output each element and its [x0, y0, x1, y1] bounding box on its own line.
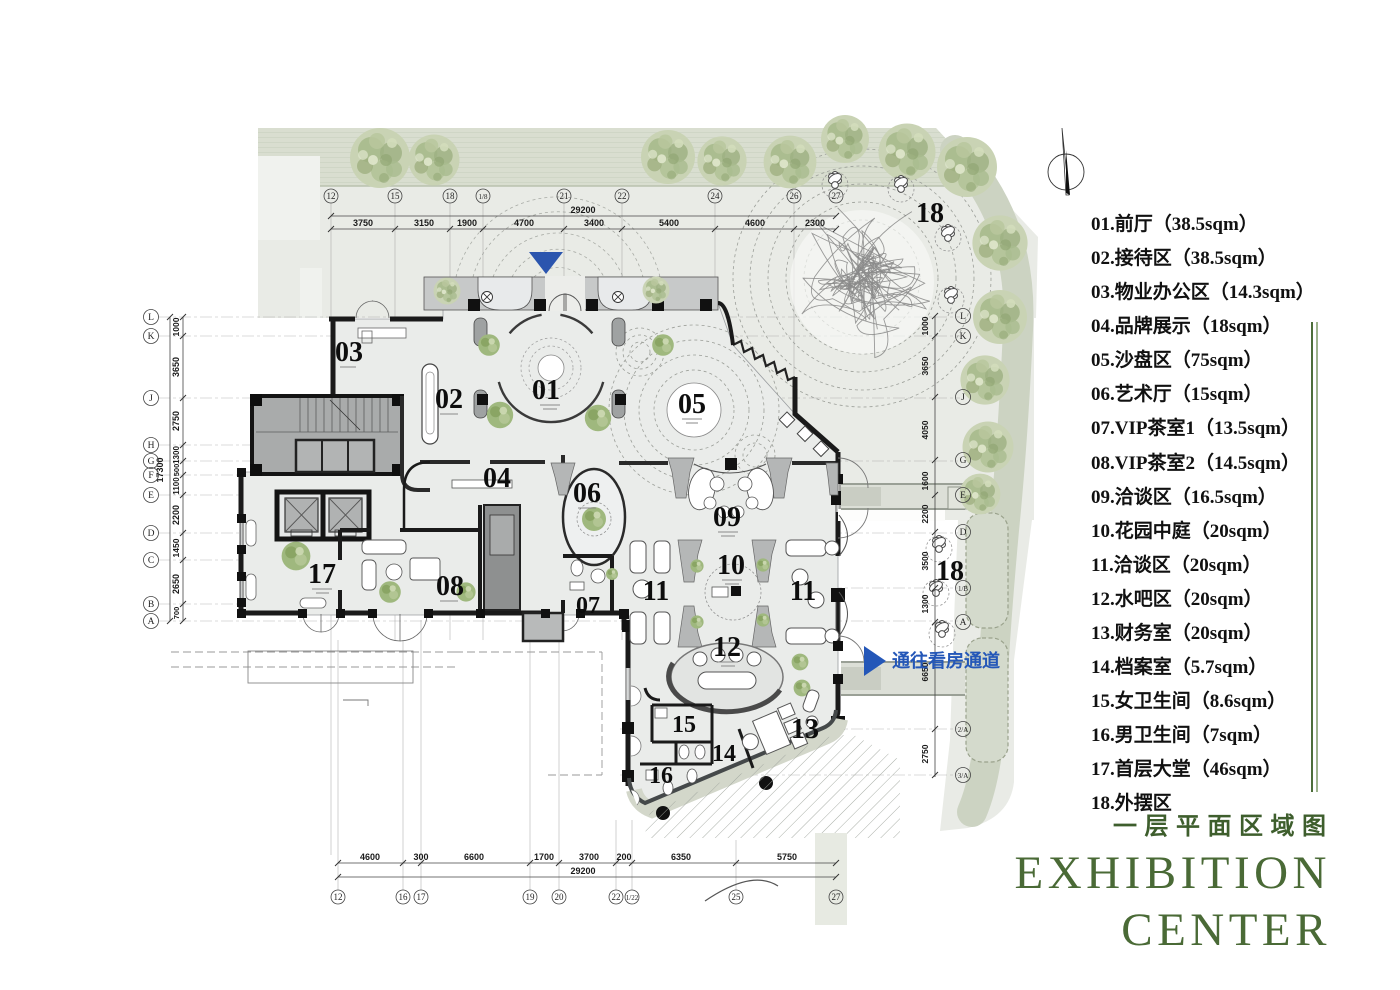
svg-text:C: C: [148, 556, 154, 566]
svg-text:18.外摆区: 18.外摆区: [1091, 791, 1172, 814]
svg-text:12: 12: [334, 892, 343, 902]
svg-text:19: 19: [526, 892, 536, 902]
svg-text:08.VIP茶室2（14.5sqm）: 08.VIP茶室2（14.5sqm）: [1091, 451, 1300, 474]
svg-text:通往看房通道: 通往看房通道: [892, 650, 1000, 671]
svg-text:EXHIBITION: EXHIBITION: [1015, 847, 1332, 899]
svg-text:3650: 3650: [171, 357, 181, 377]
svg-text:500: 500: [172, 464, 181, 477]
svg-text:02.接待区（38.5sqm）: 02.接待区（38.5sqm）: [1091, 246, 1277, 269]
svg-text:1900: 1900: [457, 218, 477, 228]
svg-text:700: 700: [172, 607, 181, 620]
svg-text:2/A: 2/A: [958, 726, 969, 734]
svg-text:04.品牌展示（18sqm）: 04.品牌展示（18sqm）: [1091, 314, 1282, 337]
svg-text:20: 20: [555, 892, 565, 902]
svg-text:29200: 29200: [570, 205, 595, 215]
svg-text:17: 17: [417, 892, 427, 902]
svg-text:27: 27: [832, 892, 842, 902]
svg-text:16.男卫生间（7sqm）: 16.男卫生间（7sqm）: [1091, 723, 1272, 746]
svg-text:2750: 2750: [920, 744, 930, 763]
svg-text:3400: 3400: [584, 218, 604, 228]
svg-text:D: D: [148, 529, 155, 539]
svg-text:L: L: [148, 313, 154, 323]
svg-text:1000: 1000: [920, 316, 930, 335]
svg-text:13.财务室（20sqm）: 13.财务室（20sqm）: [1091, 621, 1263, 644]
svg-text:17: 17: [308, 559, 336, 590]
svg-text:L: L: [960, 312, 966, 322]
svg-text:5750: 5750: [777, 852, 797, 862]
svg-text:06: 06: [573, 478, 601, 509]
svg-text:3650: 3650: [920, 356, 930, 375]
svg-text:15.女卫生间（8.6sqm）: 15.女卫生间（8.6sqm）: [1091, 689, 1286, 712]
svg-text:2750: 2750: [171, 411, 181, 431]
svg-text:21: 21: [560, 191, 569, 201]
svg-text:06.艺术厅（15sqm）: 06.艺术厅（15sqm）: [1091, 382, 1263, 405]
svg-text:1300: 1300: [172, 446, 181, 464]
svg-text:1/8: 1/8: [479, 193, 488, 201]
svg-text:22: 22: [618, 191, 627, 201]
svg-text:2650: 2650: [171, 574, 181, 594]
svg-text:15: 15: [672, 712, 696, 738]
svg-text:03: 03: [335, 337, 363, 368]
svg-text:11.洽谈区（20sqm）: 11.洽谈区（20sqm）: [1091, 553, 1262, 576]
svg-text:10.花园中庭（20sqm）: 10.花园中庭（20sqm）: [1091, 519, 1282, 542]
svg-text:2200: 2200: [920, 504, 930, 523]
svg-text:15: 15: [391, 191, 401, 201]
svg-text:J: J: [961, 393, 965, 403]
svg-text:12.水吧区（20sqm）: 12.水吧区（20sqm）: [1091, 587, 1263, 610]
svg-text:2300: 2300: [805, 218, 825, 228]
svg-text:200: 200: [616, 852, 631, 862]
svg-text:17.首层大堂（46sqm）: 17.首层大堂（46sqm）: [1091, 757, 1282, 780]
svg-text:12: 12: [327, 191, 336, 201]
svg-text:1450: 1450: [171, 538, 181, 557]
svg-text:4600: 4600: [360, 852, 380, 862]
svg-text:D: D: [960, 528, 967, 538]
svg-text:29200: 29200: [570, 866, 595, 876]
svg-text:1600: 1600: [920, 471, 930, 490]
svg-text:16: 16: [649, 763, 673, 789]
svg-text:3700: 3700: [579, 852, 599, 862]
svg-text:08: 08: [436, 571, 464, 602]
svg-text:1/22: 1/22: [626, 894, 639, 902]
svg-text:18: 18: [916, 198, 944, 229]
svg-text:05: 05: [678, 389, 706, 420]
svg-text:4600: 4600: [745, 218, 765, 228]
svg-text:F: F: [148, 471, 153, 481]
svg-text:04: 04: [483, 463, 511, 494]
svg-text:03.物业办公区（14.3sqm）: 03.物业办公区（14.3sqm）: [1091, 280, 1315, 303]
svg-text:G: G: [148, 457, 155, 467]
svg-text:07.VIP茶室1（13.5sqm）: 07.VIP茶室1（13.5sqm）: [1091, 416, 1300, 439]
svg-text:13: 13: [791, 714, 819, 745]
svg-text:09.洽谈区（16.5sqm）: 09.洽谈区（16.5sqm）: [1091, 485, 1277, 508]
svg-text:2200: 2200: [171, 505, 181, 525]
svg-text:14.档案室（5.7sqm）: 14.档案室（5.7sqm）: [1091, 655, 1267, 678]
svg-text:B: B: [148, 600, 154, 610]
svg-text:4050: 4050: [920, 420, 930, 439]
svg-text:K: K: [960, 332, 967, 342]
svg-text:18: 18: [446, 191, 456, 201]
svg-text:14: 14: [712, 741, 736, 767]
svg-text:300: 300: [413, 852, 428, 862]
svg-text:H: H: [148, 441, 155, 451]
svg-text:10: 10: [717, 550, 745, 581]
svg-text:26: 26: [790, 191, 800, 201]
svg-text:27: 27: [832, 191, 842, 201]
svg-text:1000: 1000: [171, 317, 181, 336]
svg-text:6350: 6350: [671, 852, 691, 862]
svg-text:01: 01: [532, 375, 560, 406]
svg-text:09: 09: [713, 502, 741, 533]
svg-text:18: 18: [936, 556, 964, 587]
svg-text:07: 07: [576, 593, 600, 619]
svg-text:3750: 3750: [353, 218, 373, 228]
svg-text:16: 16: [399, 892, 409, 902]
svg-text:01.前厅（38.5sqm）: 01.前厅（38.5sqm）: [1091, 212, 1258, 235]
svg-text:12: 12: [713, 632, 741, 663]
svg-text:05.沙盘区（75sqm）: 05.沙盘区（75sqm）: [1091, 348, 1263, 371]
svg-text:K: K: [148, 332, 155, 342]
svg-text:1300: 1300: [920, 594, 930, 613]
svg-text:E: E: [960, 491, 966, 501]
svg-text:6600: 6600: [464, 852, 484, 862]
svg-text:22: 22: [612, 892, 621, 902]
svg-text:11: 11: [643, 576, 669, 607]
svg-text:02: 02: [435, 384, 463, 415]
svg-text:1100: 1100: [172, 477, 181, 495]
svg-text:J: J: [149, 394, 153, 404]
svg-text:24: 24: [711, 191, 721, 201]
svg-text:A: A: [960, 618, 967, 628]
svg-text:一层平面区域图: 一层平面区域图: [1113, 813, 1334, 840]
svg-text:3500: 3500: [920, 551, 930, 570]
svg-text:1700: 1700: [534, 852, 554, 862]
svg-text:3150: 3150: [414, 218, 434, 228]
svg-text:E: E: [148, 491, 154, 501]
svg-text:11: 11: [790, 576, 816, 607]
svg-text:5400: 5400: [659, 218, 679, 228]
svg-text:G: G: [960, 456, 967, 466]
svg-text:3/A: 3/A: [958, 772, 969, 780]
svg-text:CENTER: CENTER: [1121, 904, 1331, 956]
svg-text:A: A: [148, 617, 155, 627]
svg-text:25: 25: [732, 892, 742, 902]
svg-text:4700: 4700: [514, 218, 534, 228]
